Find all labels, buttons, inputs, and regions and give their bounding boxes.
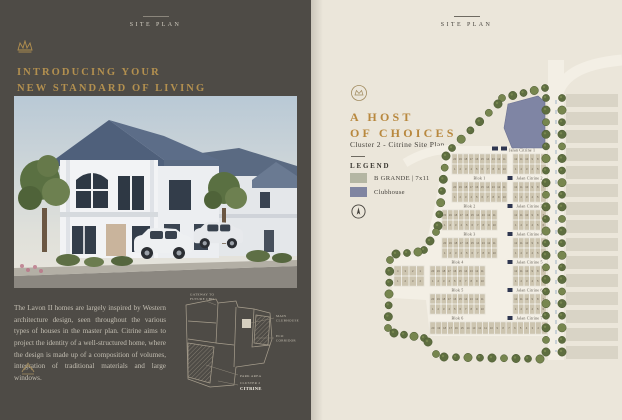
- tree: [542, 288, 549, 295]
- tree-highlight: [478, 356, 480, 358]
- tree-highlight: [521, 91, 523, 93]
- laurel-ornament-icon: [18, 358, 38, 376]
- lot-number: 15: [471, 241, 474, 245]
- tree-highlight: [544, 217, 546, 219]
- lot-number: 15: [481, 185, 484, 189]
- neighbor-block: [566, 112, 618, 125]
- tree-highlight: [514, 356, 516, 358]
- lot-number: 12: [514, 213, 517, 217]
- gate-marker: [508, 260, 513, 264]
- lot-number: 12: [514, 297, 517, 301]
- tree: [467, 127, 474, 134]
- minimap-label-cluster: CLUSTER 2: [240, 381, 260, 385]
- tree-highlight: [560, 144, 562, 146]
- tree: [488, 354, 496, 362]
- lot-number: 13: [470, 269, 473, 273]
- tree-highlight: [444, 154, 446, 156]
- tree: [542, 154, 550, 162]
- lot-number: 12: [487, 213, 490, 217]
- tree-highlight: [560, 193, 562, 195]
- tree: [558, 154, 566, 162]
- neighbor-block: [566, 274, 618, 287]
- tree-highlight: [560, 156, 562, 158]
- tree: [558, 119, 565, 126]
- lot-number: 11: [484, 326, 487, 330]
- tree: [524, 355, 531, 362]
- tree-highlight: [560, 120, 562, 122]
- tree-highlight: [544, 314, 546, 316]
- lot-number: 11: [503, 185, 506, 189]
- header-rule: [143, 16, 169, 17]
- tree: [558, 227, 566, 235]
- crown-ornament-icon: [16, 40, 34, 54]
- tree-highlight: [560, 253, 562, 255]
- lot-number: 10: [503, 195, 506, 199]
- tree: [542, 324, 550, 332]
- lot-number: 14: [464, 269, 467, 273]
- tree-highlight: [544, 205, 546, 207]
- tree: [439, 175, 447, 183]
- tree: [542, 240, 549, 247]
- tree-highlight: [544, 350, 546, 352]
- neighbor-block: [566, 202, 618, 215]
- lot-number: 14: [476, 241, 479, 245]
- tree-highlight: [466, 355, 468, 357]
- tree-highlight: [500, 96, 502, 98]
- neighbor-block: [566, 184, 618, 197]
- bgrande-swatch: [350, 173, 367, 183]
- tree-highlight: [386, 303, 388, 305]
- minimap-clubhouse-marker: [242, 319, 251, 328]
- gate-marker: [508, 176, 513, 180]
- minimap-label-clubhouse-2: CLUBHOUSE: [276, 318, 299, 322]
- lot-number: 19: [449, 241, 452, 245]
- tree-highlight: [544, 168, 546, 170]
- lot-number: 18: [454, 213, 457, 217]
- tree-highlight: [560, 326, 562, 328]
- locator-minimap: GATEWAY TO FUTURE CBD MAIN CLUBHOUSE ECO…: [176, 291, 304, 409]
- lot-number: 20: [453, 157, 456, 161]
- lot-number: 11: [493, 213, 496, 217]
- tree-highlight: [544, 180, 546, 182]
- tree: [457, 135, 465, 143]
- tree: [542, 299, 550, 307]
- lot-number: 18: [464, 185, 467, 189]
- tree: [558, 130, 566, 138]
- lot-number: 19: [437, 297, 440, 301]
- tree: [426, 237, 434, 245]
- tree: [542, 227, 550, 235]
- neighbor-block: [566, 166, 618, 179]
- lot-number: 13: [482, 241, 485, 245]
- tree: [558, 336, 565, 343]
- lot-number: 19: [459, 157, 462, 161]
- tree-highlight: [560, 277, 562, 279]
- tree-highlight: [560, 168, 562, 170]
- clubhouse-building: [504, 96, 545, 148]
- tree: [542, 119, 549, 126]
- lot-number: 10: [525, 213, 528, 217]
- tree-highlight: [454, 355, 456, 357]
- tree: [542, 312, 549, 319]
- tree: [542, 178, 550, 186]
- lot-number: 16: [455, 326, 458, 330]
- tree-highlight: [459, 137, 461, 139]
- tree-highlight: [387, 269, 389, 271]
- lot-number: 13: [470, 297, 473, 301]
- lot-number: 11: [481, 269, 484, 273]
- lot-number: 18: [442, 297, 445, 301]
- lot-number: 16: [453, 297, 456, 301]
- tree-highlight: [560, 180, 562, 182]
- tree-highlight: [416, 250, 418, 252]
- lot-number: 11: [481, 297, 484, 301]
- lot-number: 17: [448, 297, 451, 301]
- tree-highlight: [392, 331, 394, 333]
- tree-highlight: [560, 108, 562, 110]
- tree-highlight: [560, 217, 562, 219]
- tree: [485, 109, 492, 116]
- tree: [542, 264, 549, 271]
- lot-number: 16: [475, 185, 478, 189]
- lot-number: 10: [525, 269, 528, 273]
- tree: [385, 267, 393, 275]
- tree-highlight: [544, 289, 546, 291]
- tree-highlight: [490, 356, 492, 358]
- tree-highlight: [544, 193, 546, 195]
- tree: [541, 84, 548, 91]
- lot-number: 13: [492, 157, 495, 161]
- tree-highlight: [387, 292, 389, 294]
- tree-highlight: [544, 338, 546, 340]
- tree-highlight: [560, 96, 562, 98]
- tree-highlight: [544, 277, 546, 279]
- lot-number: 12: [475, 269, 478, 273]
- tree-highlight: [468, 128, 470, 130]
- clubhouse-swatch: [350, 187, 367, 197]
- tree: [436, 211, 443, 218]
- tree: [542, 348, 550, 356]
- tree: [530, 86, 538, 94]
- lot-number: 14: [476, 213, 479, 217]
- lot-number: 14: [486, 185, 489, 189]
- tree: [542, 167, 549, 174]
- lot-number: 17: [449, 326, 452, 330]
- tree-highlight: [386, 314, 388, 316]
- tree: [542, 251, 550, 259]
- header-rule: [454, 16, 480, 17]
- tree: [509, 91, 517, 99]
- tree: [542, 143, 549, 150]
- lot-number: 19: [449, 213, 452, 217]
- tree: [414, 248, 422, 256]
- tree: [558, 203, 566, 211]
- tree: [403, 249, 410, 256]
- lot-number: 10: [503, 167, 506, 171]
- tree-highlight: [544, 229, 546, 231]
- lot-number: 16: [465, 241, 468, 245]
- street-label-blok: Blok 2: [464, 204, 476, 209]
- street-label-blok: Blok 4: [452, 260, 464, 265]
- tree: [440, 353, 448, 361]
- lot-number: 20: [431, 326, 434, 330]
- tree: [558, 275, 566, 283]
- neighbor-block: [566, 292, 618, 305]
- tree: [441, 164, 448, 171]
- street-label-blok: Blok 3: [464, 232, 476, 237]
- gate-marker: [492, 147, 498, 151]
- tree-highlight: [434, 230, 436, 232]
- tree: [542, 275, 550, 283]
- tree: [436, 198, 444, 206]
- tree: [542, 94, 549, 101]
- tree-highlight: [544, 108, 546, 110]
- neighbor-block: [566, 220, 618, 233]
- tree-highlight: [560, 289, 562, 291]
- tree: [385, 290, 393, 298]
- lot-number: 12: [497, 185, 500, 189]
- tree-highlight: [436, 224, 438, 226]
- lot-number: 10: [481, 307, 484, 311]
- tree: [390, 329, 398, 337]
- tree-highlight: [544, 253, 546, 255]
- lot-number: 10: [525, 157, 528, 161]
- tree-highlight: [560, 205, 562, 207]
- lot-number: 15: [459, 297, 462, 301]
- lot-number: 11: [493, 241, 496, 245]
- tree-highlight: [538, 357, 540, 359]
- lot-number: 20: [443, 241, 446, 245]
- tree: [558, 106, 566, 114]
- tree-highlight: [412, 334, 414, 336]
- tree: [558, 312, 565, 319]
- tree-highlight: [560, 132, 562, 134]
- tree-highlight: [502, 356, 504, 358]
- lot-number: 12: [475, 297, 478, 301]
- lot-number: 20: [453, 185, 456, 189]
- neighbor-block: [566, 148, 618, 161]
- street-label-blok: Blok 1: [474, 176, 486, 181]
- lot-number: 19: [437, 269, 440, 273]
- tree: [494, 100, 502, 108]
- tree-highlight: [434, 352, 436, 354]
- tree: [558, 143, 565, 150]
- tree: [558, 288, 565, 295]
- lot-number: 12: [487, 241, 490, 245]
- tree-highlight: [544, 301, 546, 303]
- street-label-citrine: Jalan Citrine 3: [516, 204, 542, 209]
- street-label-blok: Blok 6: [452, 316, 464, 321]
- intro-title-line1: INTRODUCING YOUR: [17, 65, 206, 81]
- tree-highlight: [526, 357, 528, 359]
- tree: [558, 191, 565, 198]
- tree: [558, 324, 566, 332]
- street-label-blok: Blok 5: [452, 288, 464, 293]
- intro-title-line2: NEW STANDARD OF LIVING: [17, 81, 206, 97]
- lot-number: 19: [459, 185, 462, 189]
- tree: [512, 354, 520, 362]
- minimap-label-gateway-2: FUTURE CBD: [190, 297, 214, 301]
- tree-highlight: [560, 241, 562, 243]
- lot-number: 16: [453, 269, 456, 273]
- lot-number: 10: [490, 326, 493, 330]
- tree: [500, 355, 507, 362]
- lot-number: 15: [461, 326, 464, 330]
- tree: [432, 350, 439, 357]
- lot-number: 17: [460, 241, 463, 245]
- tree: [400, 331, 407, 338]
- tree: [542, 215, 549, 222]
- tree: [558, 299, 566, 307]
- neighbor-block: [566, 328, 618, 341]
- tree: [558, 251, 566, 259]
- lot-number: 18: [442, 269, 445, 273]
- lot-number: 10: [525, 297, 528, 301]
- lot-number: 11: [520, 297, 523, 301]
- tree-highlight: [560, 265, 562, 267]
- tree-highlight: [422, 336, 424, 338]
- tree-highlight: [388, 258, 390, 260]
- tree-highlight: [532, 88, 534, 90]
- tree-highlight: [422, 248, 424, 250]
- lot-number: 12: [514, 157, 517, 161]
- lot-number: 13: [472, 326, 475, 330]
- tree: [386, 279, 393, 286]
- tree-highlight: [442, 355, 444, 357]
- neighbor-block: [566, 94, 618, 107]
- lot-number: 11: [520, 213, 523, 217]
- tree-highlight: [560, 350, 562, 352]
- lot-number: 14: [464, 297, 467, 301]
- gate-marker: [508, 288, 513, 292]
- right-header-label: SITE PLAN: [441, 22, 492, 28]
- lot-number: 17: [470, 157, 473, 161]
- lot-number: 16: [465, 213, 468, 217]
- tree: [558, 348, 566, 356]
- tree-highlight: [387, 280, 389, 282]
- tree: [542, 130, 550, 138]
- tree-highlight: [428, 239, 430, 241]
- tree-highlight: [442, 165, 444, 167]
- tree-highlight: [560, 338, 562, 340]
- street-label-citrine: Jalan Citrine 7: [516, 316, 542, 321]
- tree: [558, 240, 565, 247]
- lot-number: 12: [478, 326, 481, 330]
- tree-highlight: [544, 96, 546, 98]
- lot-number: 19: [437, 326, 440, 330]
- tree-highlight: [438, 200, 440, 202]
- lot-number: 17: [448, 269, 451, 273]
- tree: [410, 332, 418, 340]
- minimap-park-zone: [188, 343, 214, 383]
- street-label-citrine: Jalan Citrine 6: [516, 288, 542, 293]
- lot-number: 17: [470, 185, 473, 189]
- tree: [558, 178, 566, 186]
- tree: [558, 215, 565, 222]
- lot-number: 18: [464, 157, 467, 161]
- tree-highlight: [402, 332, 404, 334]
- street-label-citrine: Jalan Citrine 2: [516, 176, 542, 181]
- tree: [558, 167, 565, 174]
- minimap-label-citrine: CITRINE: [240, 386, 262, 391]
- lot-number: 16: [475, 157, 478, 161]
- tree-highlight: [544, 265, 546, 267]
- gate-marker: [501, 147, 507, 151]
- left-page-header: SITE PLAN: [0, 16, 311, 28]
- lot-number: 17: [460, 213, 463, 217]
- tree-highlight: [544, 120, 546, 122]
- lot-number: 10: [525, 241, 528, 245]
- tree-highlight: [496, 102, 498, 104]
- gate-marker: [508, 232, 513, 236]
- lot-number: 15: [459, 269, 462, 273]
- neighbor-block: [566, 130, 618, 143]
- tree-highlight: [543, 86, 545, 88]
- tree-highlight: [544, 144, 546, 146]
- lot-number: 20: [443, 213, 446, 217]
- tree: [476, 354, 483, 361]
- tree: [536, 355, 544, 363]
- right-page-header: SITE PLAN: [311, 16, 622, 28]
- tree-highlight: [394, 252, 396, 254]
- neighbor-block: [566, 256, 618, 269]
- tree-highlight: [560, 229, 562, 231]
- lot-number: 18: [443, 326, 446, 330]
- tree-highlight: [560, 301, 562, 303]
- tree: [542, 336, 549, 343]
- tree: [542, 106, 550, 114]
- tree: [386, 256, 393, 263]
- tree: [464, 353, 472, 361]
- lot-number: 10: [493, 251, 496, 255]
- street-label-citrine-1: Jalan Citrine 1: [509, 148, 535, 153]
- tree-highlight: [544, 156, 546, 158]
- tree: [424, 338, 432, 346]
- lot-number: 20: [431, 297, 434, 301]
- lot-number: 12: [497, 157, 500, 161]
- tree: [558, 264, 565, 271]
- house-render-photo: [14, 96, 297, 288]
- gate-marker: [508, 316, 513, 320]
- left-page: SITE PLAN INTRODUCING YOUR NEW STANDARD …: [0, 0, 311, 420]
- tree-highlight: [560, 314, 562, 316]
- lot-number: 13: [492, 185, 495, 189]
- minimap-label-park: PARK AREA: [240, 374, 262, 378]
- lot-number: 11: [520, 269, 523, 273]
- tree-highlight: [386, 326, 388, 328]
- tree: [432, 228, 439, 235]
- tree: [442, 152, 450, 160]
- street-label-citrine: Jalan Citrine 5: [516, 260, 542, 265]
- lot-number: 13: [482, 213, 485, 217]
- legend-rule: [351, 156, 365, 157]
- tree: [542, 191, 549, 198]
- seal-ornament-icon: [350, 84, 368, 102]
- lot-number: 11: [520, 241, 523, 245]
- lot-number: 11: [520, 185, 523, 189]
- gate-marker: [508, 204, 513, 208]
- lot-number: 15: [471, 213, 474, 217]
- tree-highlight: [487, 111, 489, 113]
- intro-title: INTRODUCING YOUR NEW STANDARD OF LIVING: [17, 65, 206, 97]
- tree: [438, 187, 445, 194]
- tree: [542, 203, 550, 211]
- neighbor-block: [566, 310, 618, 323]
- tree: [384, 312, 392, 320]
- tree-highlight: [450, 146, 452, 148]
- lot-number: 10: [525, 185, 528, 189]
- tree-highlight: [544, 241, 546, 243]
